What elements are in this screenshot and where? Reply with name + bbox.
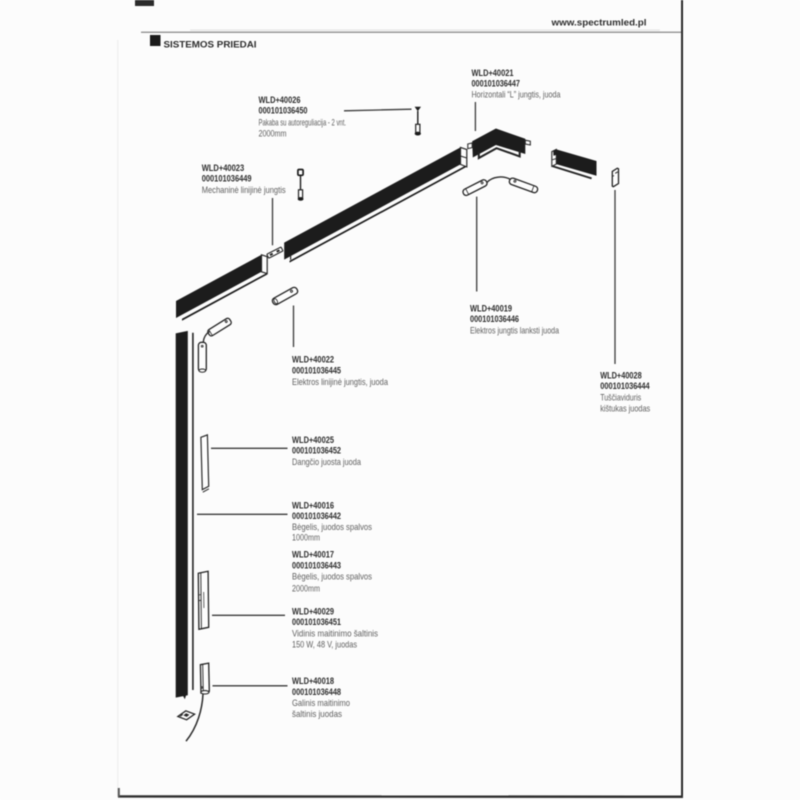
svg-text:WLD+40021: WLD+40021 <box>472 68 515 79</box>
svg-text:000101036443: 000101036443 <box>292 560 341 571</box>
svg-text:Dangčio juosta juoda: Dangčio juosta juoda <box>292 457 362 468</box>
svg-text:WLD+40029: WLD+40029 <box>292 606 334 617</box>
svg-text:000101036450: 000101036450 <box>259 106 308 117</box>
svg-text:150 W, 48 V, juodas: 150 W, 48 V, juodas <box>292 640 357 651</box>
svg-text:000101036448: 000101036448 <box>292 687 341 698</box>
svg-text:000101036452: 000101036452 <box>292 446 341 457</box>
svg-text:www.spectrumled.pl: www.spectrumled.pl <box>550 17 646 28</box>
svg-text:Tuščiaviduris: Tuščiaviduris <box>600 392 641 403</box>
svg-text:1000mm: 1000mm <box>292 533 320 544</box>
svg-text:000101036444: 000101036444 <box>600 381 650 392</box>
svg-text:000101036446: 000101036446 <box>470 314 519 325</box>
svg-text:2000mm: 2000mm <box>259 128 287 139</box>
svg-text:000101036449: 000101036449 <box>202 174 252 185</box>
svg-text:WLD+40025: WLD+40025 <box>292 435 335 446</box>
svg-text:WLD+40018: WLD+40018 <box>292 676 334 687</box>
svg-text:Horizontali “L” jungtis, juoda: Horizontali “L” jungtis, juoda <box>472 89 562 100</box>
svg-text:šaltinis juodas: šaltinis juodas <box>292 709 342 720</box>
svg-text:Elektros linijinė jungtis, juo: Elektros linijinė jungtis, juoda <box>292 377 389 388</box>
svg-text:Bėgelis, juodos spalvos: Bėgelis, juodos spalvos <box>292 572 372 583</box>
svg-text:Galinis maitinimo: Galinis maitinimo <box>292 698 350 709</box>
svg-text:WLD+40019: WLD+40019 <box>470 304 512 315</box>
svg-text:Bėgelis, juodos spalvos: Bėgelis, juodos spalvos <box>292 522 372 533</box>
svg-text:000101036451: 000101036451 <box>292 617 342 628</box>
svg-text:000101036442: 000101036442 <box>292 511 341 522</box>
svg-text:Elektros jungtis lanksti juoda: Elektros jungtis lanksti juoda <box>470 326 560 337</box>
svg-text:WLD+40023: WLD+40023 <box>202 163 245 174</box>
svg-text:WLD+40028: WLD+40028 <box>600 371 642 382</box>
svg-text:SISTEMOS PRIEDAI: SISTEMOS PRIEDAI <box>164 40 257 51</box>
svg-text:2000mm: 2000mm <box>292 584 320 595</box>
svg-text:Mechaninė linijinė jungtis: Mechaninė linijinė jungtis <box>202 185 286 196</box>
svg-text:Pakaba su autoreguliacija - 2: Pakaba su autoreguliacija - 2 vnt. <box>259 117 347 128</box>
svg-text:kištukas juodas: kištukas juodas <box>600 404 650 415</box>
svg-text:000101036447: 000101036447 <box>472 78 520 89</box>
svg-text:000101036445: 000101036445 <box>292 365 342 376</box>
svg-text:WLD+40022: WLD+40022 <box>292 355 334 366</box>
svg-text:WLD+40017: WLD+40017 <box>292 550 334 561</box>
svg-text:Vidinis maitinimo šaltinis: Vidinis maitinimo šaltinis <box>292 629 378 640</box>
svg-text:WLD+40016: WLD+40016 <box>292 501 334 512</box>
svg-text:WLD+40026: WLD+40026 <box>259 95 301 106</box>
